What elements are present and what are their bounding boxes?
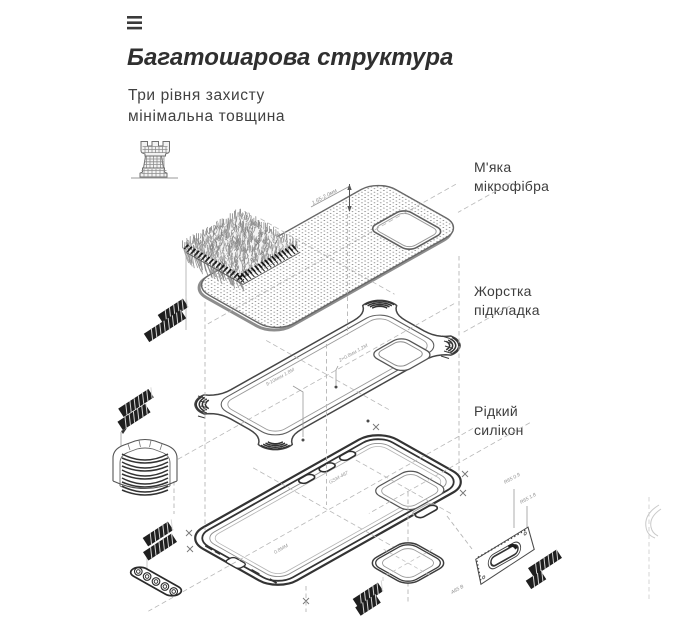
svg-text:R65 1.8: R65 1.8 bbox=[519, 492, 537, 506]
svg-text:А85 В: А85 В bbox=[449, 584, 465, 597]
svg-text:R65 0.9: R65 0.9 bbox=[503, 472, 521, 486]
